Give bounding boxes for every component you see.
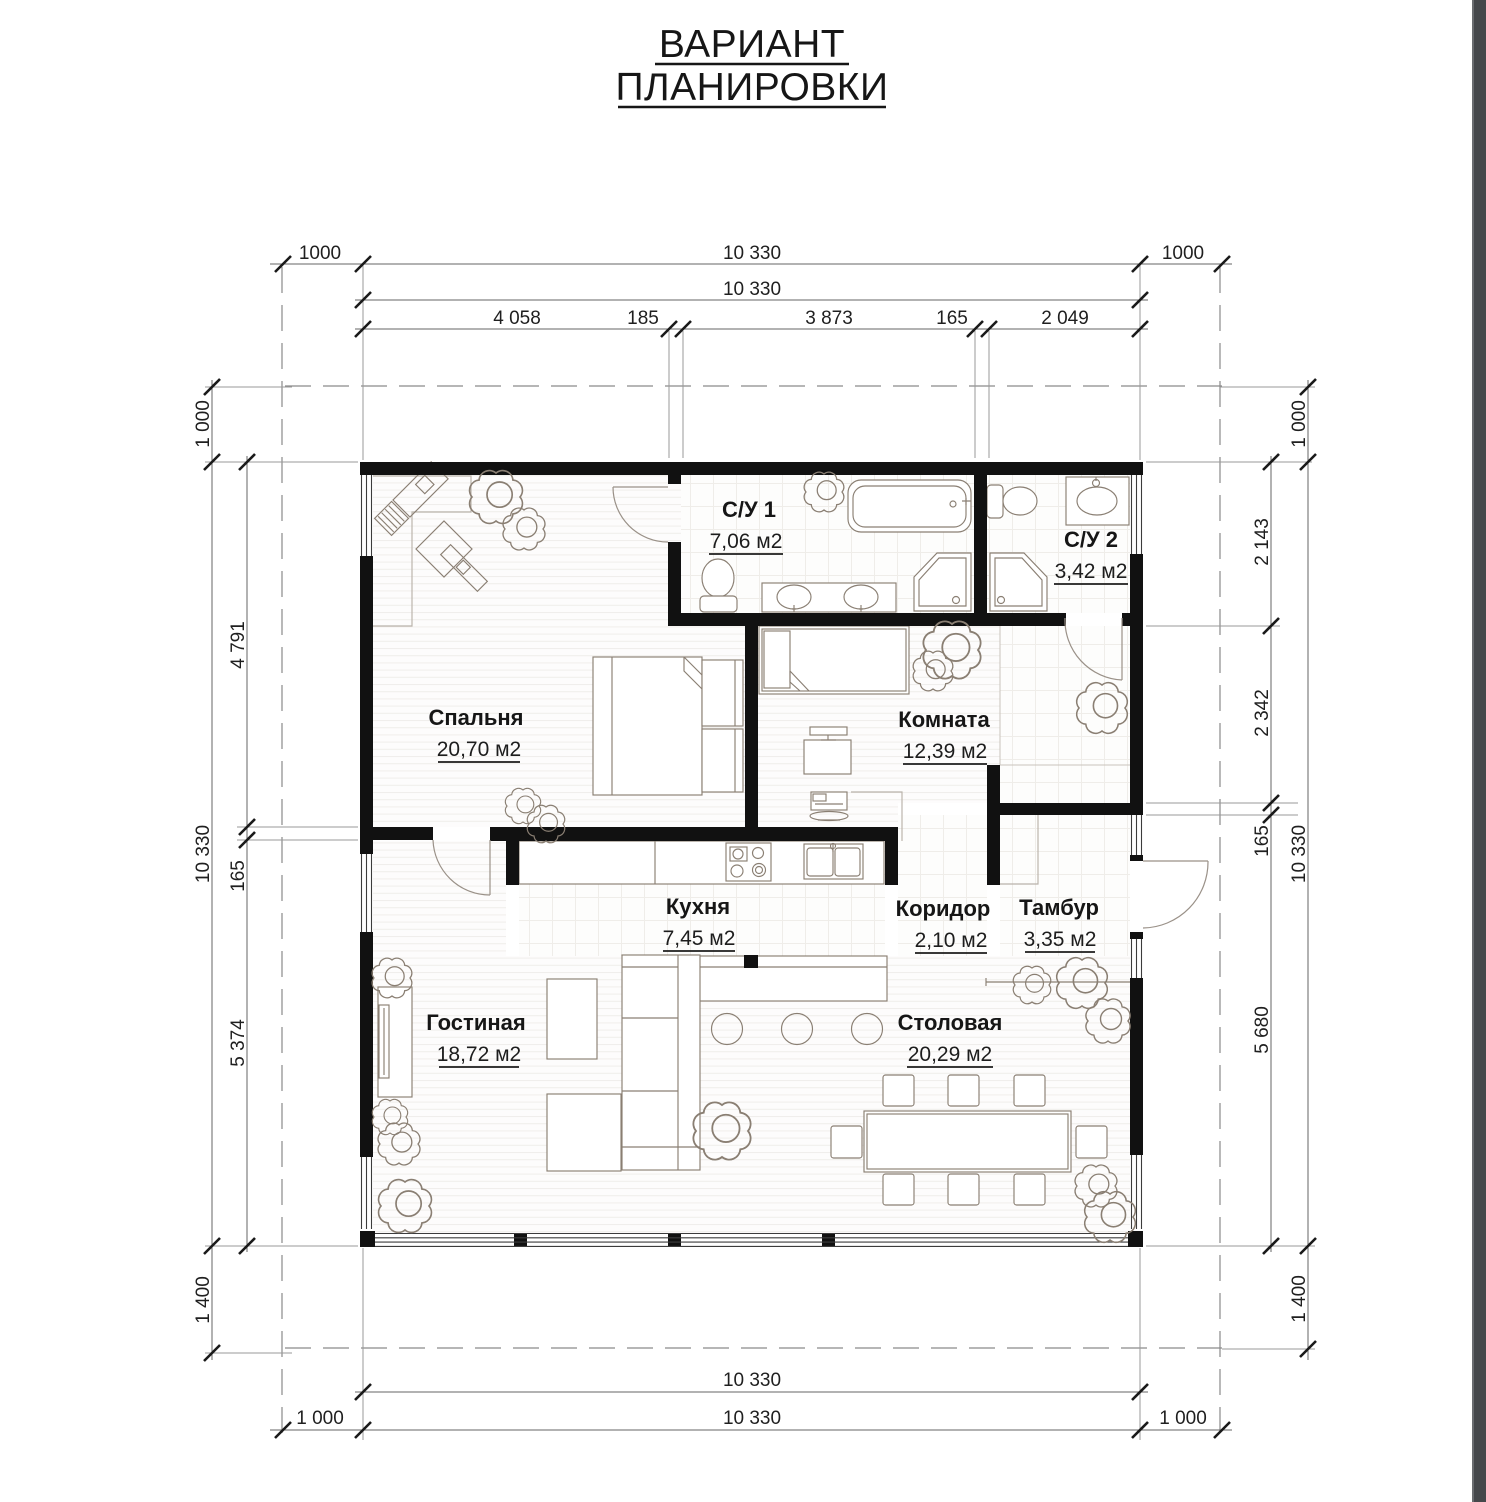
svg-text:Гостиная: Гостиная: [426, 1010, 525, 1035]
svg-text:1 000: 1 000: [193, 400, 214, 448]
svg-text:3,42 м2: 3,42 м2: [1055, 560, 1128, 583]
svg-text:С/У 2: С/У 2: [1064, 527, 1118, 552]
svg-text:10 330: 10 330: [723, 243, 781, 264]
svg-text:2,10 м2: 2,10 м2: [915, 929, 988, 952]
svg-text:1 000: 1 000: [1159, 1408, 1207, 1429]
svg-text:185: 185: [627, 308, 659, 329]
svg-text:10 330: 10 330: [723, 279, 781, 300]
svg-text:1 000: 1 000: [1289, 400, 1310, 448]
svg-text:7,45 м2: 7,45 м2: [663, 927, 736, 950]
svg-text:165: 165: [1252, 825, 1273, 857]
svg-text:4 058: 4 058: [493, 308, 541, 329]
svg-text:5 680: 5 680: [1252, 1006, 1273, 1054]
svg-text:20,70 м2: 20,70 м2: [437, 738, 522, 761]
svg-text:Коридор: Коридор: [896, 896, 991, 921]
svg-text:20,29 м2: 20,29 м2: [908, 1043, 993, 1066]
svg-text:7,06 м2: 7,06 м2: [710, 530, 783, 553]
svg-text:ПЛАНИРОВКИ: ПЛАНИРОВКИ: [615, 66, 888, 109]
svg-text:Спальня: Спальня: [428, 705, 523, 730]
svg-text:2 342: 2 342: [1252, 689, 1273, 737]
svg-text:4 791: 4 791: [228, 621, 249, 669]
svg-text:3 873: 3 873: [805, 308, 853, 329]
svg-text:Кухня: Кухня: [666, 894, 730, 919]
svg-text:1 400: 1 400: [193, 1276, 214, 1324]
svg-text:1 000: 1 000: [296, 1408, 344, 1429]
svg-text:10 330: 10 330: [1289, 825, 1310, 883]
svg-text:3,35 м2: 3,35 м2: [1024, 928, 1097, 951]
svg-text:1 400: 1 400: [1289, 1275, 1310, 1323]
svg-text:ВАРИАНТ: ВАРИАНТ: [659, 23, 845, 66]
svg-text:12,39 м2: 12,39 м2: [903, 740, 988, 763]
svg-text:2 143: 2 143: [1252, 518, 1273, 566]
svg-text:10 330: 10 330: [723, 1370, 781, 1391]
svg-text:165: 165: [936, 308, 968, 329]
svg-text:10 330: 10 330: [193, 825, 214, 883]
svg-text:165: 165: [228, 860, 249, 892]
svg-text:Тамбур: Тамбур: [1019, 895, 1099, 920]
svg-text:1000: 1000: [299, 243, 341, 264]
svg-text:5 374: 5 374: [228, 1019, 249, 1067]
svg-text:10 330: 10 330: [723, 1408, 781, 1429]
svg-text:1000: 1000: [1162, 243, 1204, 264]
svg-text:Столовая: Столовая: [898, 1010, 1003, 1035]
svg-text:2 049: 2 049: [1041, 308, 1089, 329]
svg-text:18,72 м2: 18,72 м2: [437, 1043, 522, 1066]
svg-text:С/У 1: С/У 1: [722, 497, 776, 522]
svg-text:Комната: Комната: [898, 707, 990, 732]
